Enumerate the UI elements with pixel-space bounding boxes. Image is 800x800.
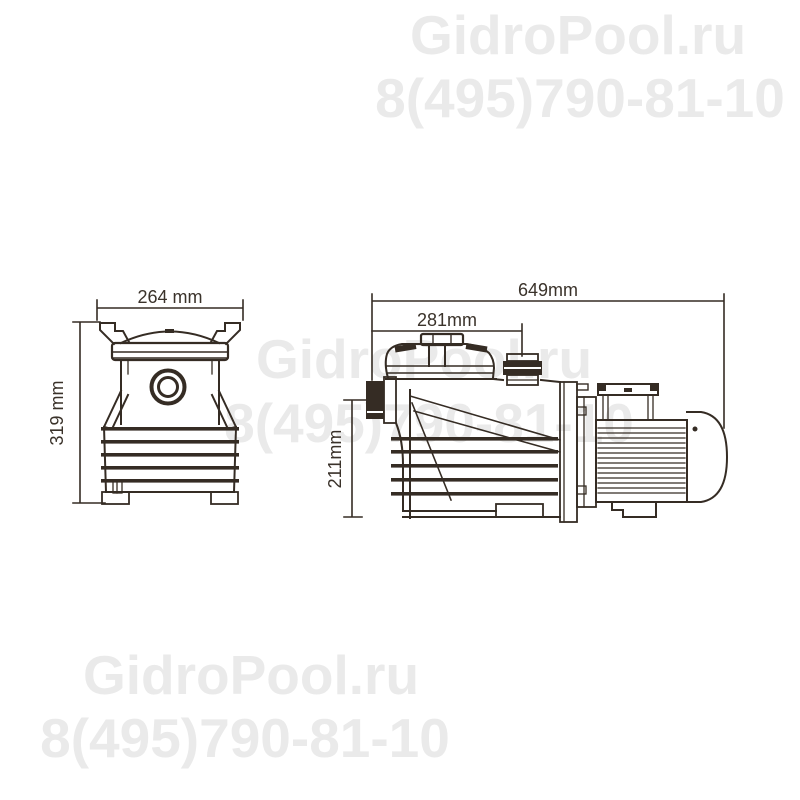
dim-side-lid-offset-label: 281mm <box>417 310 477 330</box>
front-view <box>73 300 243 504</box>
front-rib <box>101 453 239 457</box>
strainer-lid <box>386 344 496 379</box>
dim-side-inlet-height-label: 211mm <box>325 430 345 489</box>
dim-front-height-label: 319 mm <box>47 380 67 445</box>
dim-side-inlet-height-lines <box>344 400 366 517</box>
lid-handle <box>421 334 463 366</box>
side-rib <box>391 478 558 482</box>
dimension-labels: 264 mm 319 mm 649mm 281mm 211mm <box>47 280 578 488</box>
front-clamp-band <box>112 343 228 360</box>
front-rib <box>101 479 239 483</box>
page: { "page": { "background": "#ffffff" }, "… <box>0 0 800 800</box>
motor-flange <box>577 397 596 507</box>
side-rib <box>391 492 558 496</box>
dim-front-height-lines <box>73 322 105 503</box>
front-tank <box>102 427 238 504</box>
side-rib <box>391 437 558 441</box>
front-rib <box>101 427 239 431</box>
front-rib <box>101 440 239 444</box>
front-rib <box>101 466 239 470</box>
inlet-port <box>366 381 384 419</box>
dim-front-width-label: 264 mm <box>137 287 202 307</box>
side-rib <box>391 450 558 454</box>
pump-body <box>396 379 560 518</box>
motor-end-cap <box>687 412 727 502</box>
dim-side-length-label: 649mm <box>518 280 578 300</box>
motor <box>596 420 687 502</box>
side-view <box>344 294 727 522</box>
motor-foot <box>612 502 656 517</box>
front-lid-dome <box>121 332 219 344</box>
front-lid-wings <box>100 323 240 344</box>
side-rib <box>391 464 558 468</box>
front-port-circle <box>152 371 185 404</box>
pump-dimension-drawing: 264 mm 319 mm 649mm 281mm 211mm <box>0 0 800 800</box>
inlet-neck <box>384 377 396 423</box>
